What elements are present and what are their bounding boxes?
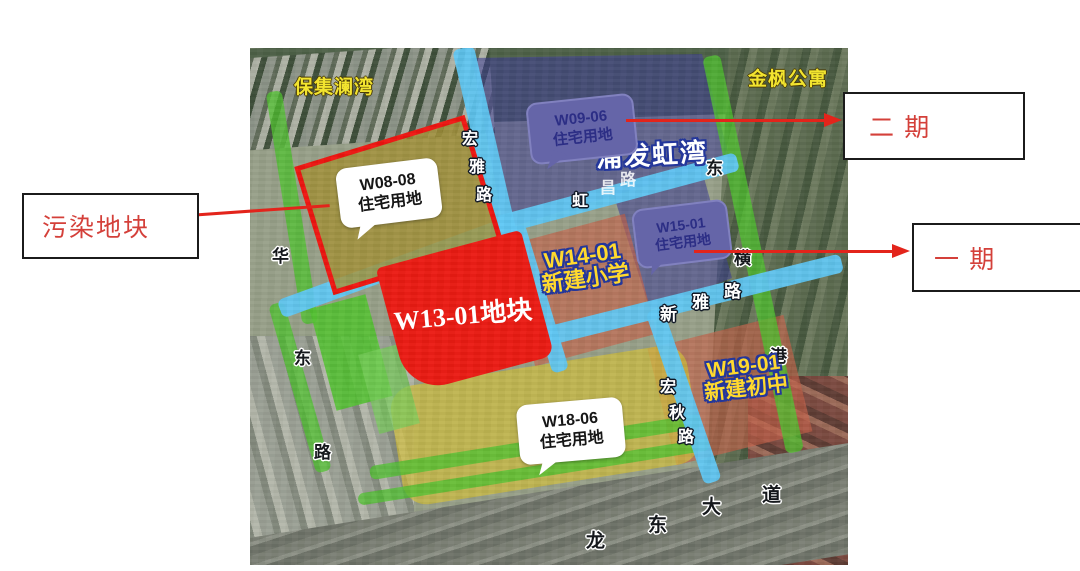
callout-phase2-label: 二 期: [869, 108, 931, 144]
bubble-w15-01: W15-01 住宅用地: [631, 198, 734, 269]
road-label-longdong-1: 龙: [586, 532, 605, 551]
road-label-longdong-2: 东: [648, 516, 667, 535]
road-label-hongya-3: 路: [476, 188, 492, 204]
road-label-hongqiu-1: 宏: [660, 380, 676, 396]
satellite-map: 保集澜湾 金枫公寓 浦发虹湾 宏 雅 路 虹 昌 路 新 雅 路 宏 秋 路 华…: [250, 48, 848, 565]
callout-phase1-label: 一 期: [934, 240, 996, 276]
arrow-phase2-head-icon: [824, 113, 842, 127]
callout-phase2: 二 期: [843, 92, 1025, 160]
bubble-w18-06: W18-06 住宅用地: [516, 396, 627, 465]
label-jinfeng-apartment: 金枫公寓: [748, 64, 828, 91]
road-label-hongqiu-3: 路: [678, 430, 694, 446]
road-label-hongya-1: 宏: [462, 132, 478, 148]
callout-phase1: 一 期: [912, 223, 1080, 292]
arrow-phase1-head-icon: [892, 244, 910, 258]
bubble-w15-01-pointer: [651, 255, 668, 276]
road-label-xinya-2: 雅: [692, 294, 709, 311]
figure-canvas: 保集澜湾 金枫公寓 浦发虹湾 宏 雅 路 虹 昌 路 新 雅 路 宏 秋 路 华…: [0, 0, 1080, 571]
road-label-xinya-3: 路: [724, 283, 741, 300]
road-label-hongchang-3: 路: [620, 173, 636, 189]
road-label-xinya-1: 新: [660, 306, 677, 323]
callout-polluted-label: 污染地块: [42, 208, 150, 244]
bubble-w08-08: W08-08 住宅用地: [335, 157, 444, 229]
road-label-longdong-4: 道: [762, 486, 781, 505]
arrow-phase2-line: [626, 119, 828, 122]
road-label-hongqiu-2: 秋: [669, 406, 685, 422]
bubble-w09-06: W09-06 住宅用地: [525, 93, 639, 166]
road-label-huadong-3: 路: [314, 444, 331, 461]
river-label-donghenggang-1: 东: [706, 160, 723, 177]
callout-polluted: 污染地块: [22, 193, 199, 259]
arrow-phase1-line: [694, 250, 894, 253]
road-label-longdong-3: 大: [702, 498, 721, 517]
road-label-hongchang-2: 昌: [600, 181, 616, 197]
road-label-huadong-2: 东: [294, 350, 311, 367]
road-label-hongchang-1: 虹: [572, 194, 588, 210]
label-baoji-lanwan: 保集澜湾: [294, 72, 374, 99]
road-label-huadong-1: 华: [272, 248, 289, 265]
road-label-hongya-2: 雅: [469, 160, 485, 176]
